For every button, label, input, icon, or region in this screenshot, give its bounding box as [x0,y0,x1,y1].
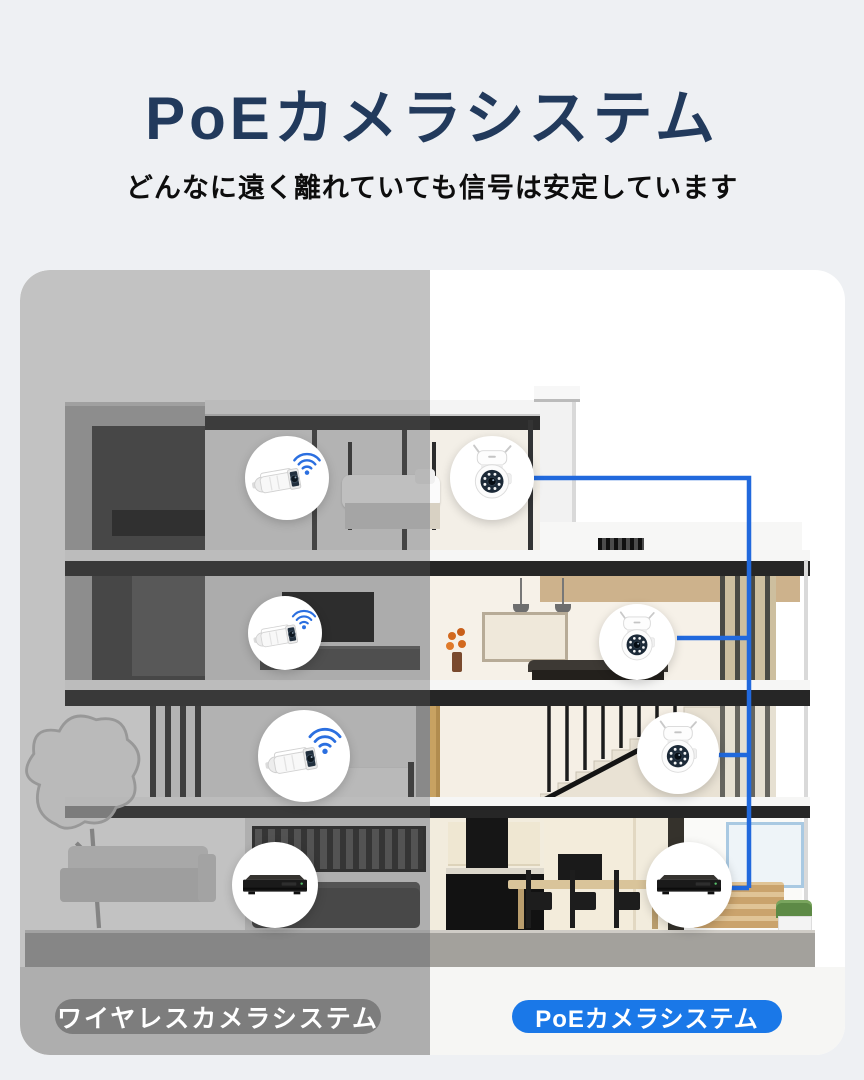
poe-cable-lines [20,270,845,1055]
wireless-camera-circle-3 [258,710,350,802]
nvr-icon [235,854,315,908]
wireless-camera-circle-2 [248,596,322,670]
poe-camera-icon [647,719,709,781]
poe-camera-circle-1 [450,436,534,520]
wifi-icon [290,604,318,630]
wifi-icon [306,720,344,755]
wireless-nvr-circle [232,842,318,928]
wireless-system-label-text: ワイヤレスカメラシステム [57,999,379,1035]
page-subtitle: どんなに遠く離れていても信号は安定しています [0,166,864,205]
page-title: PoEカメラシステム [0,70,864,157]
comparison-panel: ワイヤレスカメラシステム PoEカメラシステム [20,270,845,1055]
nvr-icon [649,854,729,908]
poe-nvr-circle [646,842,732,928]
poe-camera-circle-2 [599,604,675,680]
poe-camera-icon [608,610,666,668]
poe-system-label-text: PoEカメラシステム [535,999,758,1034]
wireless-system-label: ワイヤレスカメラシステム [55,999,381,1034]
poe-camera-circle-3 [637,712,719,794]
poe-camera-icon [460,443,524,507]
page: { "header": { "title": "PoEカメラシステム", "su… [0,0,864,1080]
poe-system-label: PoEカメラシステム [512,1000,782,1033]
wifi-icon [291,446,323,476]
wireless-camera-circle-1 [245,436,329,520]
